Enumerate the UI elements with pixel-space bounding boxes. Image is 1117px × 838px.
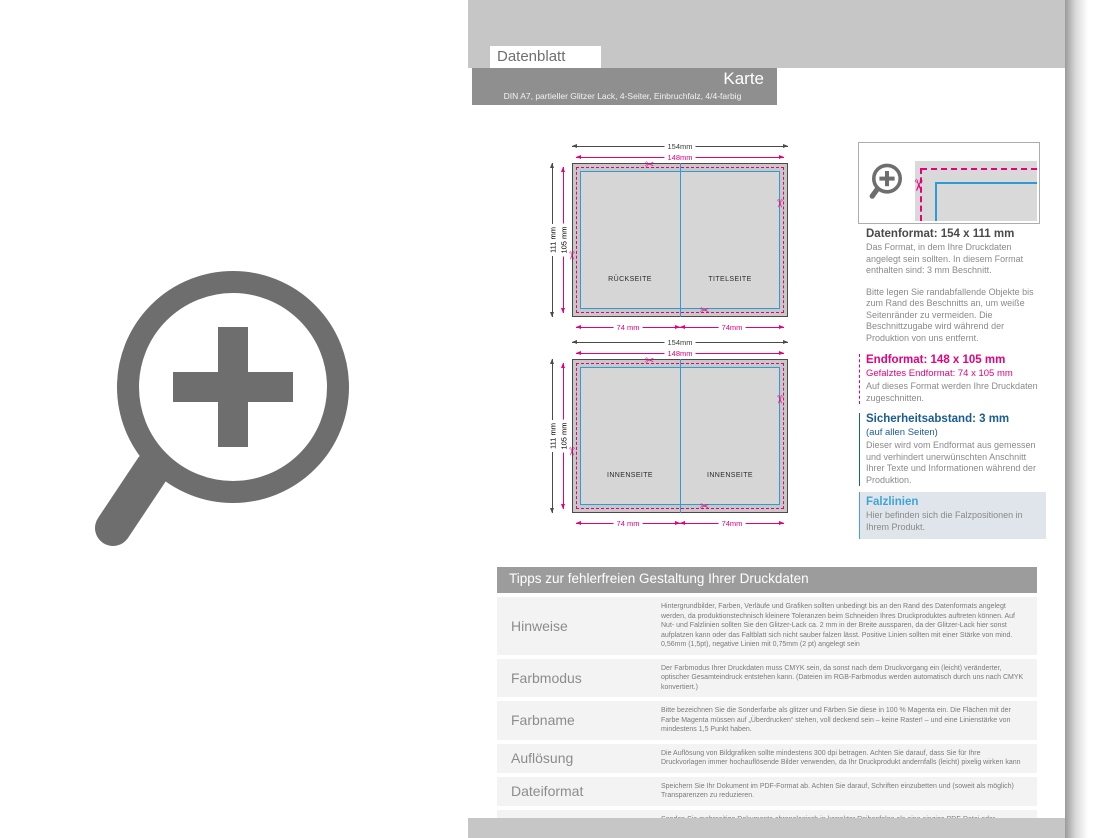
scissors-icon: ✂ bbox=[700, 502, 709, 513]
diagram-outer-spread: 154mm 148mm 111 mm 105 mm RÜCKSEITE TITE… bbox=[552, 146, 802, 342]
panel-label-right: TITELSEITE bbox=[708, 276, 751, 283]
scissors-icon: ✂ bbox=[773, 395, 784, 404]
row-text: Speichern Sie Ihr Dokument im PDF-Format… bbox=[661, 777, 1037, 806]
dim-line-endformat-width: 148mm bbox=[576, 353, 784, 354]
tips-table: Tipps zur fehlerfreien Gestaltung Ihrer … bbox=[497, 567, 1037, 838]
title-bar: Karte DIN A7, partieller Glitzer Lack, 4… bbox=[472, 68, 777, 105]
scissors-icon: ✂ bbox=[565, 251, 576, 260]
cut-line bbox=[921, 168, 1037, 170]
diagram-inner-spread: 154mm 148mm 111 mm 105 mm INNENSEITE INN… bbox=[552, 342, 802, 538]
scissors-icon: ✂ bbox=[565, 447, 576, 456]
dim-line-endformat-height: 105 mm bbox=[563, 363, 564, 509]
safety-line bbox=[935, 182, 1037, 184]
table-row: Dateiformat Speichern Sie Ihr Dokument i… bbox=[497, 777, 1037, 806]
panel-label-left: RÜCKSEITE bbox=[608, 276, 652, 283]
product-subtitle: DIN A7, partieller Glitzer Lack, 4-Seite… bbox=[472, 91, 773, 101]
endformat-text: Auf dieses Format werden Ihre Druckdaten… bbox=[866, 381, 1042, 404]
datenformat-text: Das Format, in dem Ihre Druckdaten angel… bbox=[866, 242, 1042, 277]
dim-line-fold-left: 74 mm bbox=[576, 523, 680, 524]
detail-preview-box: ✂ bbox=[858, 142, 1040, 224]
table-row: Farbname Bitte bezeichnen Sie die Sonder… bbox=[497, 701, 1037, 740]
datenformat-block: Datenformat: 154 x 111 mm Das Format, in… bbox=[866, 228, 1042, 344]
dim-line-fold-left: 74 mm bbox=[576, 327, 680, 328]
endformat-title: Endformat: 148 x 105 mm bbox=[866, 354, 1042, 366]
safety-line bbox=[935, 182, 937, 221]
datenformat-title: Datenformat: 154 x 111 mm bbox=[866, 228, 1042, 240]
datasheet-page: Datenblatt Karte DIN A7, partieller Glit… bbox=[0, 0, 1117, 838]
falzlinien-block: Falzlinien Hier befinden sich die Falzpo… bbox=[859, 492, 1046, 539]
magnifier-plus-icon bbox=[867, 161, 907, 203]
dim-line-datenformat-width: 154mm bbox=[572, 342, 788, 343]
sicherheitsabstand-subtitle: (auf allen Seiten) bbox=[866, 427, 1042, 438]
table-row: Auflösung Die Auflösung von Bildgrafiken… bbox=[497, 744, 1037, 773]
dim-line-datenformat-height: 111 mm bbox=[552, 163, 553, 317]
table-row: Hinweise Hintergrundbilder, Farben, Verl… bbox=[497, 597, 1037, 655]
row-text: Der Farbmodus Ihrer Druckdaten muss CMYK… bbox=[661, 659, 1037, 698]
panel-label-left: INNENSEITE bbox=[607, 472, 653, 479]
scissors-icon: ✂ bbox=[645, 356, 654, 367]
row-label: Farbname bbox=[497, 701, 661, 740]
row-text: Hintergrundbilder, Farben, Verläufe und … bbox=[661, 597, 1037, 655]
scissors-icon: ✂ bbox=[912, 179, 923, 192]
dim-line-datenformat-width: 154mm bbox=[572, 146, 788, 147]
page-edge-shadow bbox=[1065, 0, 1088, 838]
dim-line-fold-right: 74mm bbox=[680, 523, 784, 524]
dim-line-fold-right: 74mm bbox=[680, 327, 784, 328]
magnifier-plus-icon bbox=[85, 250, 385, 560]
row-label: Farbmodus bbox=[497, 659, 661, 698]
sicherheitsabstand-title: Sicherheitsabstand: 3 mm bbox=[866, 413, 1042, 425]
corner-detail-diagram: ✂ bbox=[905, 148, 1037, 221]
cut-line bbox=[920, 168, 922, 221]
row-text: Die Auflösung von Bildgrafiken sollte mi… bbox=[661, 744, 1037, 773]
row-text: Bitte bezeichnen Sie die Sonderfarbe als… bbox=[661, 701, 1037, 740]
sicherheitsabstand-text: Dieser wird vom Endformat aus gemessen u… bbox=[866, 440, 1042, 486]
dim-line-endformat-height: 105 mm bbox=[563, 167, 564, 313]
scissors-icon: ✂ bbox=[773, 199, 784, 208]
row-label: Auflösung bbox=[497, 744, 661, 773]
dim-line-endformat-width: 148mm bbox=[576, 157, 784, 158]
table-row: Farbmodus Der Farbmodus Ihrer Druckdaten… bbox=[497, 659, 1037, 698]
scissors-icon: ✂ bbox=[700, 306, 709, 317]
panel-label-right: INNENSEITE bbox=[707, 472, 753, 479]
falzlinien-text: Hier befinden sich die Falzpositionen in… bbox=[866, 510, 1042, 533]
bottom-strip bbox=[468, 818, 1065, 838]
falzlinien-title: Falzlinien bbox=[866, 496, 1042, 508]
endformat-block: Endformat: 148 x 105 mm Gefalztes Endfor… bbox=[859, 354, 1042, 404]
fold-line bbox=[680, 359, 681, 513]
bleed-area bbox=[915, 161, 1037, 221]
dim-line-datenformat-height: 111 mm bbox=[552, 359, 553, 513]
row-label: Dateiformat bbox=[497, 777, 661, 806]
row-label: Hinweise bbox=[497, 597, 661, 655]
sicherheitsabstand-block: Sicherheitsabstand: 3 mm (auf allen Seit… bbox=[859, 413, 1042, 486]
tips-table-title: Tipps zur fehlerfreien Gestaltung Ihrer … bbox=[497, 567, 1037, 593]
scissors-icon: ✂ bbox=[645, 160, 654, 171]
endformat-subtitle: Gefalztes Endformat: 74 x 105 mm bbox=[866, 368, 1042, 379]
fold-line bbox=[680, 163, 681, 317]
product-title: Karte bbox=[723, 69, 764, 89]
datenblatt-tab: Datenblatt bbox=[490, 46, 601, 68]
datenformat-text2: Bitte legen Sie randabfallende Objekte b… bbox=[866, 287, 1042, 345]
